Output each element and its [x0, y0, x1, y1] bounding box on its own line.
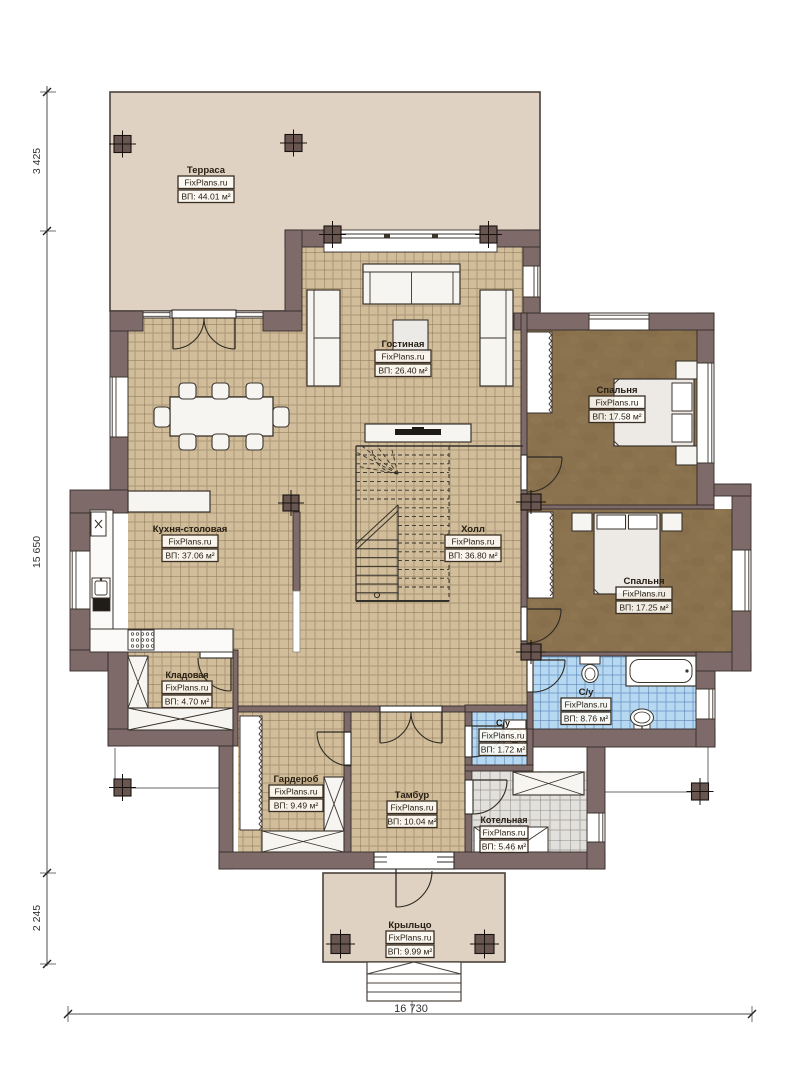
- svg-text:Кухня-столовая: Кухня-столовая: [153, 524, 228, 535]
- svg-text:Гардероб: Гардероб: [274, 774, 319, 785]
- svg-text:FixPlans.ru: FixPlans.ru: [623, 589, 666, 599]
- svg-text:Котельная: Котельная: [480, 815, 527, 825]
- svg-text:ВП: 17.58 м²: ВП: 17.58 м²: [592, 412, 641, 422]
- svg-text:ВП: 8.76 м²: ВП: 8.76 м²: [564, 714, 609, 724]
- svg-text:FixPlans.ru: FixPlans.ru: [452, 537, 495, 547]
- svg-text:Спальня: Спальня: [623, 576, 664, 587]
- svg-text:Холл: Холл: [461, 524, 485, 535]
- svg-text:FixPlans.ru: FixPlans.ru: [565, 700, 608, 710]
- svg-text:ВП: 10.04 м²: ВП: 10.04 м²: [387, 817, 436, 827]
- svg-text:Тамбур: Тамбур: [395, 790, 430, 801]
- svg-text:ВП: 9.99 м²: ВП: 9.99 м²: [388, 947, 433, 957]
- svg-text:ВП: 5.46 м²: ВП: 5.46 м²: [482, 842, 527, 852]
- svg-text:FixPlans.ru: FixPlans.ru: [483, 828, 526, 838]
- svg-text:ВП: 1.72 м²: ВП: 1.72 м²: [481, 745, 526, 755]
- svg-text:2 245: 2 245: [31, 905, 43, 931]
- svg-text:Терраса: Терраса: [187, 165, 226, 176]
- svg-text:FixPlans.ru: FixPlans.ru: [596, 398, 639, 408]
- svg-text:ВП: 4.70 м²: ВП: 4.70 м²: [165, 697, 210, 707]
- svg-text:FixPlans.ru: FixPlans.ru: [391, 803, 434, 813]
- svg-text:Спальня: Спальня: [596, 385, 637, 396]
- svg-text:Гостиная: Гостиная: [382, 339, 425, 350]
- svg-text:ВП: 9.49 м²: ВП: 9.49 м²: [274, 801, 319, 811]
- svg-text:ВП: 44.01 м²: ВП: 44.01 м²: [181, 192, 230, 202]
- svg-text:3 425: 3 425: [31, 148, 43, 174]
- svg-text:FixPlans.ru: FixPlans.ru: [185, 178, 228, 188]
- svg-text:Кладовая: Кладовая: [165, 670, 208, 680]
- svg-text:FixPlans.ru: FixPlans.ru: [166, 683, 209, 693]
- svg-text:FixPlans.ru: FixPlans.ru: [389, 933, 432, 943]
- svg-text:ВП: 37.06 м²: ВП: 37.06 м²: [165, 551, 214, 561]
- svg-text:Крыльцо: Крыльцо: [388, 920, 431, 931]
- svg-text:FixPlans.ru: FixPlans.ru: [275, 787, 318, 797]
- svg-text:ВП: 26.40 м²: ВП: 26.40 м²: [378, 366, 427, 376]
- svg-text:С/у: С/у: [496, 718, 510, 728]
- svg-text:FixPlans.ru: FixPlans.ru: [169, 537, 212, 547]
- svg-text:ВП: 17.25 м²: ВП: 17.25 м²: [619, 603, 668, 613]
- svg-text:16 730: 16 730: [394, 1003, 428, 1015]
- svg-text:FixPlans.ru: FixPlans.ru: [382, 352, 425, 362]
- svg-text:FixPlans.ru: FixPlans.ru: [482, 731, 525, 741]
- svg-text:С/у: С/у: [579, 687, 595, 698]
- svg-text:ВП: 36.80 м²: ВП: 36.80 м²: [448, 551, 497, 561]
- svg-text:15 650: 15 650: [31, 536, 43, 568]
